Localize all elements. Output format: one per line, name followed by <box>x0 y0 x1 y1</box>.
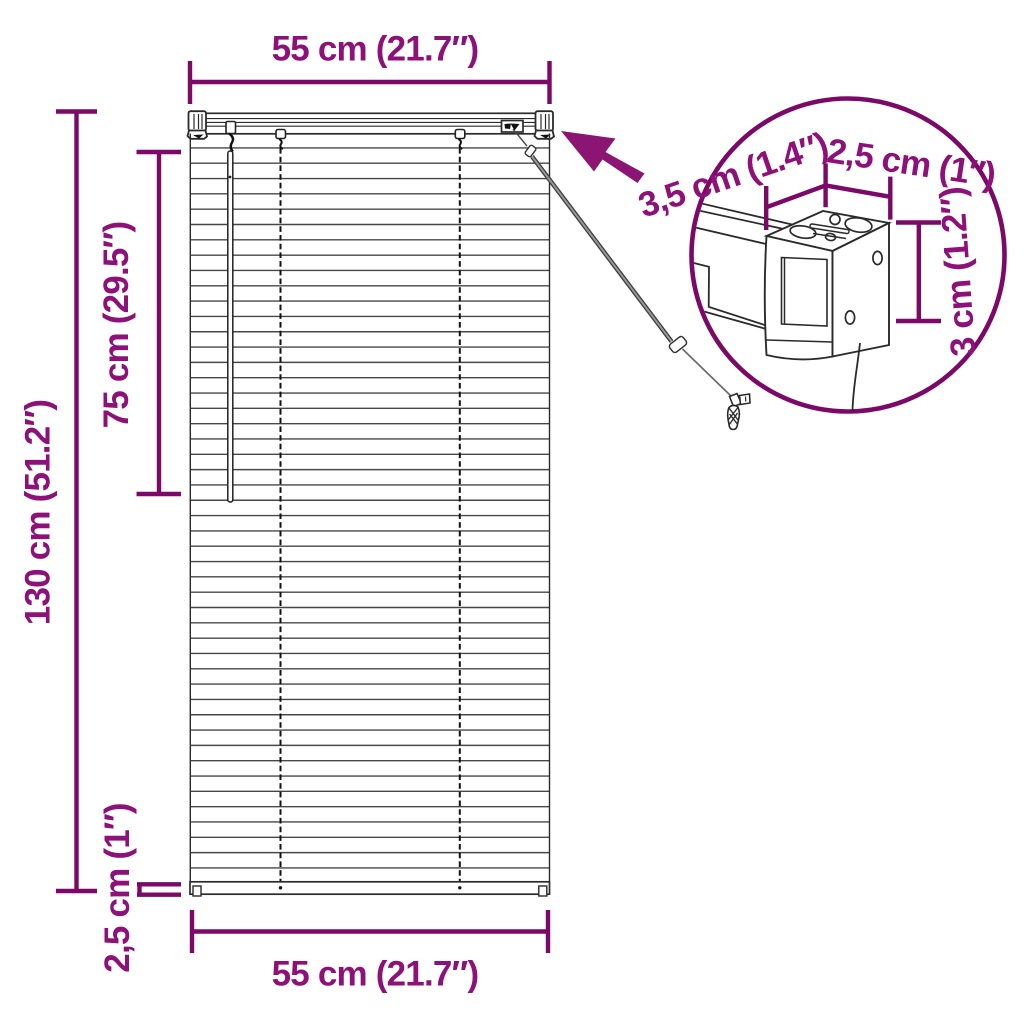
svg-text:55 cm (21.7″): 55 cm (21.7″) <box>272 955 479 994</box>
svg-text:130 cm (51.2″): 130 cm (51.2″) <box>19 400 58 625</box>
svg-text:2,5 cm (1″): 2,5 cm (1″) <box>98 803 137 972</box>
svg-text:55 cm (21.7″): 55 cm (21.7″) <box>272 30 479 69</box>
svg-text:75 cm (29.5″): 75 cm (29.5″) <box>97 222 136 429</box>
